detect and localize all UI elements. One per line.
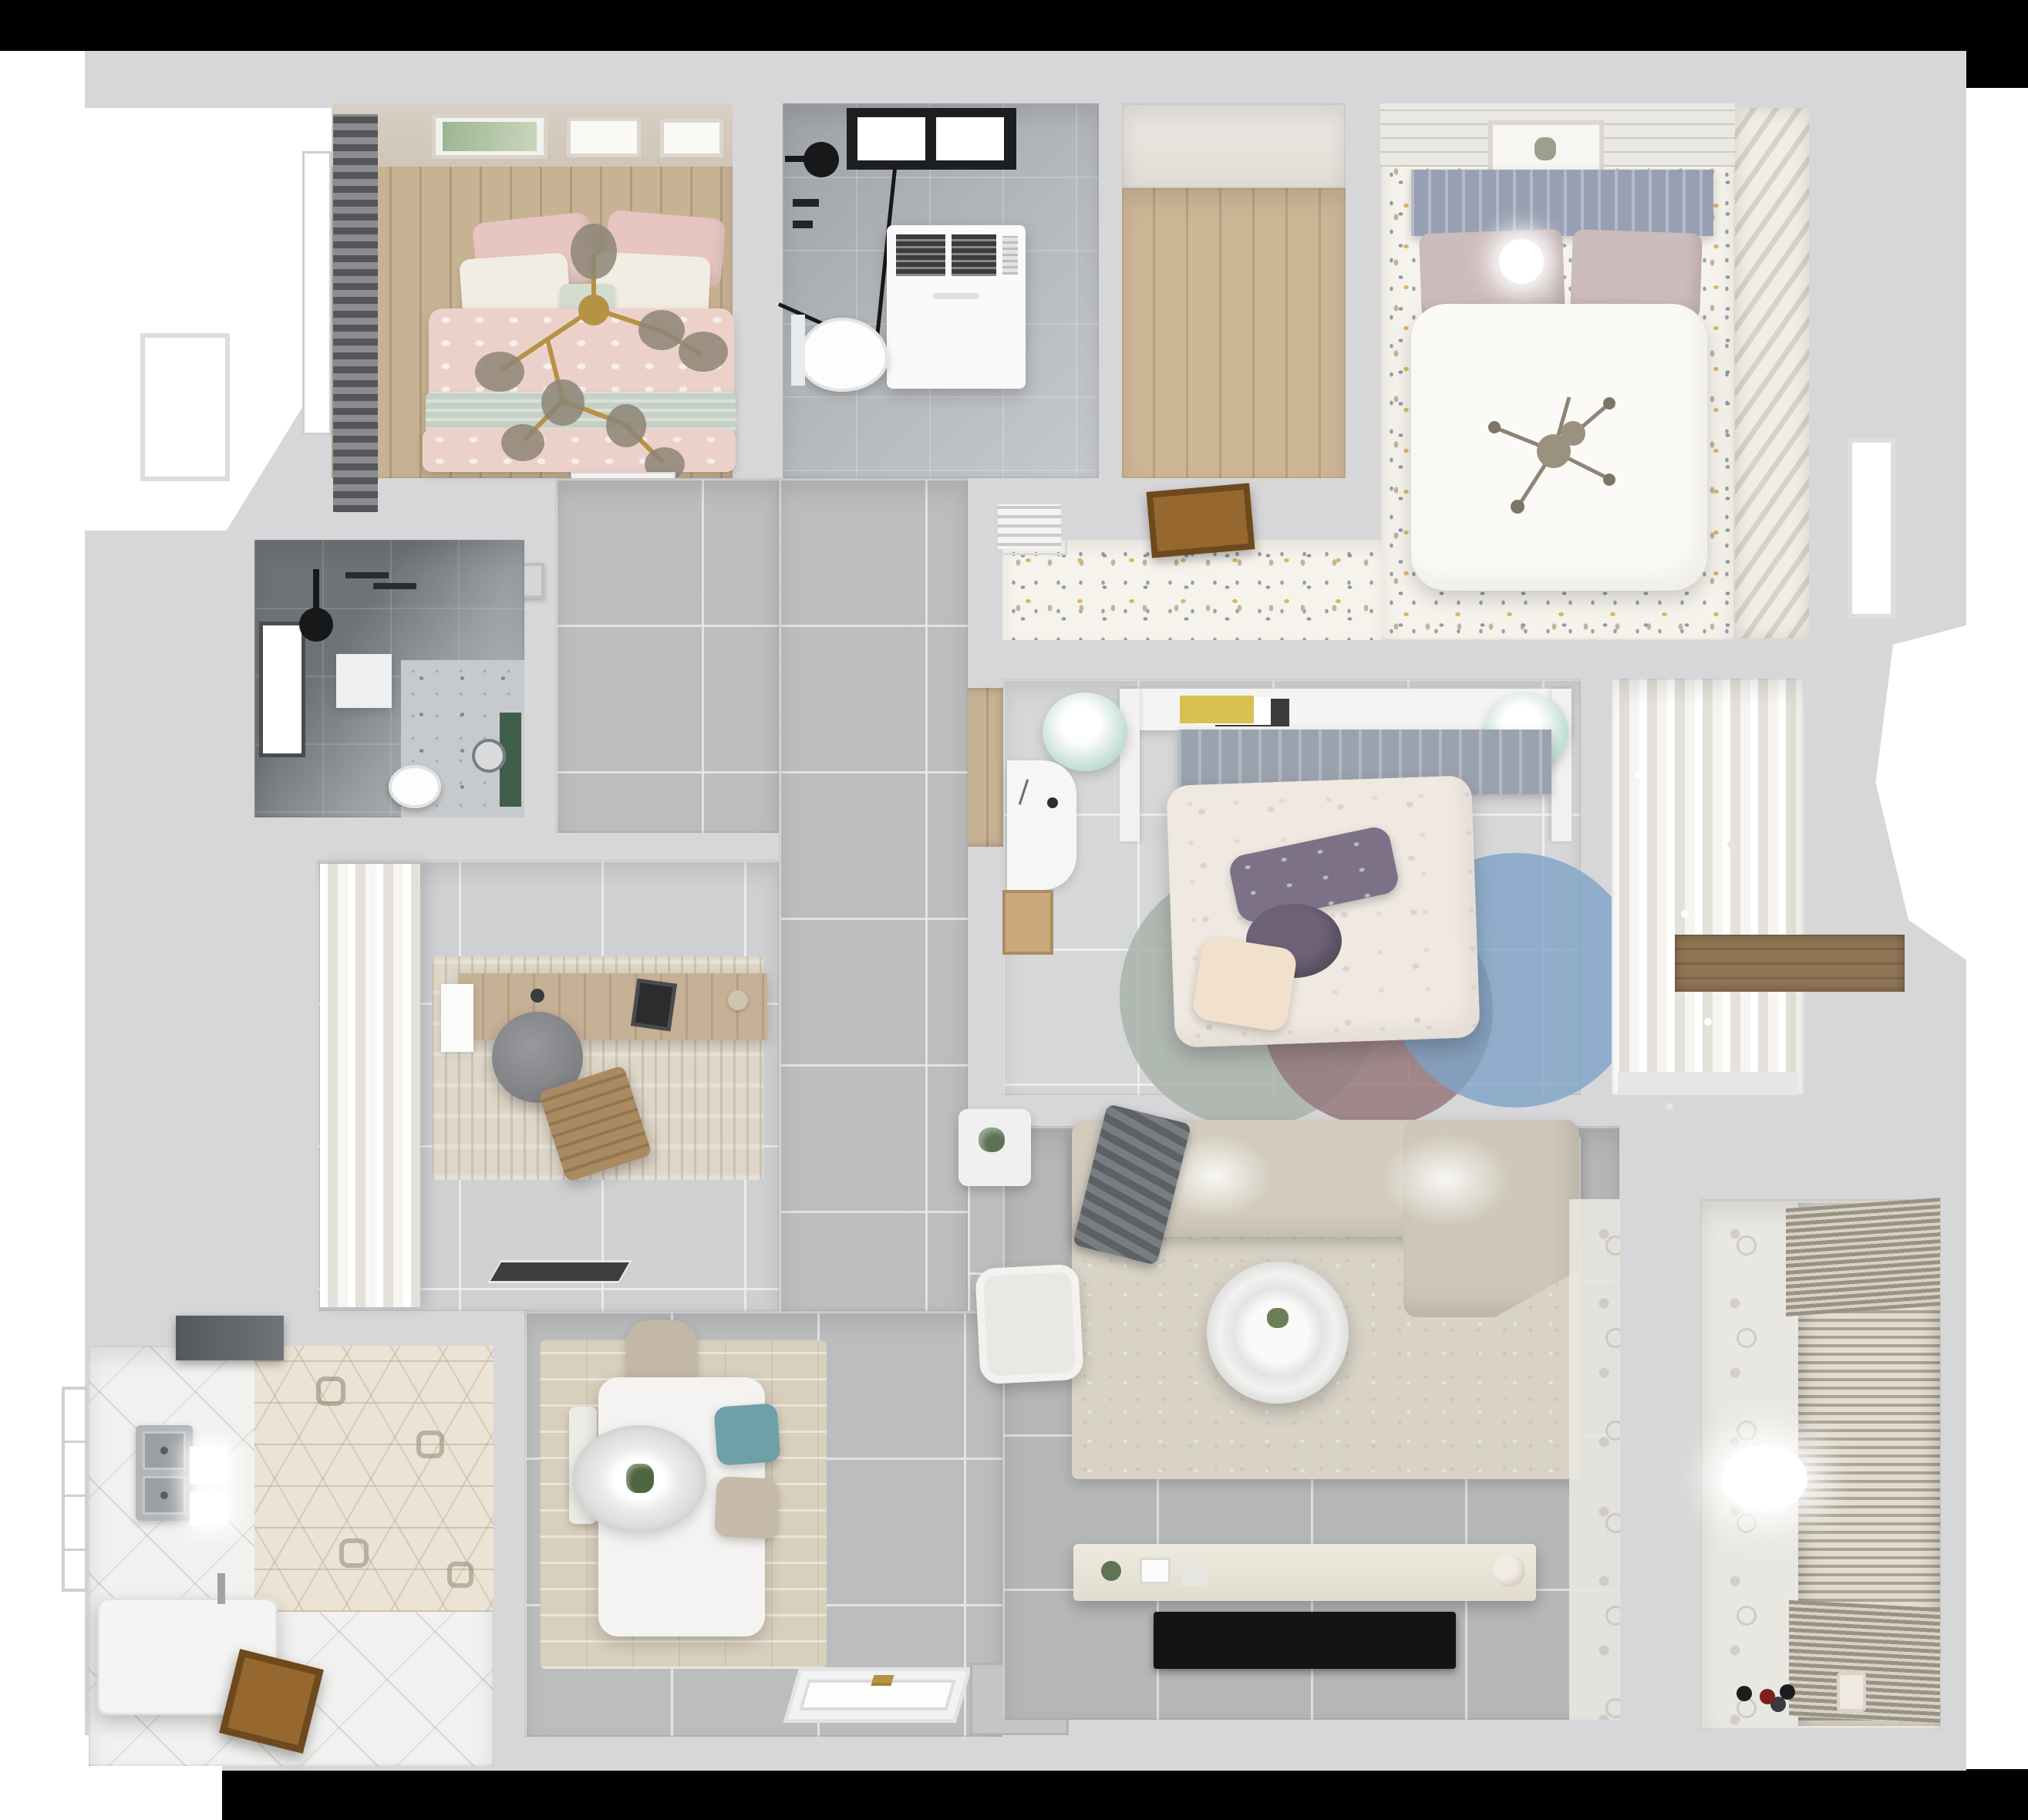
vertical-blinds-strip xyxy=(1735,108,1809,639)
wall-tv xyxy=(1154,1612,1456,1669)
decor-lamp xyxy=(1493,1555,1525,1587)
sputnik-chandelier-icon xyxy=(1465,362,1642,540)
dining-chair-beige xyxy=(714,1476,779,1539)
top-black-bar xyxy=(0,0,2028,51)
dining-chair-beige xyxy=(626,1320,697,1379)
side-table-plant xyxy=(979,1127,1005,1152)
window-pane xyxy=(936,117,1004,160)
bottom-black-bar xyxy=(222,1769,2028,1820)
hex-motif xyxy=(339,1539,369,1568)
picture-frame xyxy=(1488,120,1604,177)
range-hood xyxy=(176,1316,284,1360)
side-table xyxy=(958,1109,1031,1186)
white-desk xyxy=(1007,760,1076,890)
hallway-floor: Hallway xyxy=(779,478,968,1311)
shelf-upright xyxy=(1120,689,1140,841)
white-shelf-unit xyxy=(336,654,392,708)
island-faucet xyxy=(217,1573,225,1604)
shower-valve xyxy=(793,221,813,228)
dark-doormat xyxy=(487,1260,632,1283)
shower-ceiling-arm xyxy=(313,569,319,614)
ball-lamp xyxy=(1499,239,1544,284)
master-side-door-leaf xyxy=(1848,438,1895,618)
walkin-room-wall-top: Empty walk-in room xyxy=(1122,103,1346,188)
toilet xyxy=(389,765,441,808)
background-right-lower xyxy=(1968,995,2028,1769)
desk-plant xyxy=(728,990,748,1010)
sofa-seat-glow xyxy=(1380,1134,1511,1226)
tv-sideboard xyxy=(1073,1544,1536,1601)
hex-motif xyxy=(447,1562,473,1588)
teal-stool xyxy=(1043,693,1127,771)
table-plant xyxy=(1267,1308,1289,1328)
desk-wood-unit xyxy=(1002,890,1053,955)
shower-arm xyxy=(785,156,831,162)
double-stainless-sink xyxy=(136,1425,193,1521)
picture-frame xyxy=(660,119,723,157)
shower-room-window xyxy=(259,622,305,757)
walkin-room-wood-floor xyxy=(1122,188,1346,478)
wood-niche-right xyxy=(1675,935,1905,992)
bright-counter-pad xyxy=(190,1447,228,1484)
hex-motif xyxy=(416,1431,444,1458)
cream-pillow xyxy=(1191,935,1298,1033)
open-wood-door xyxy=(1147,483,1255,558)
study-sheer-curtains xyxy=(320,864,420,1307)
hex-motif xyxy=(316,1377,345,1406)
balcony-toys xyxy=(1737,1686,1752,1701)
desk-papers xyxy=(441,984,473,1052)
bright-counter-pad xyxy=(190,1491,228,1525)
picture-frame xyxy=(567,117,641,157)
washing-machine xyxy=(887,225,1026,389)
balcony-mini-chair xyxy=(1837,1672,1866,1712)
wardrobe-threshold xyxy=(1618,1072,1798,1095)
window-pane xyxy=(857,117,925,160)
balcony-blinds-dense-top xyxy=(1786,1198,1940,1316)
floorplan-render: Top-down 3D render of an apartment floor… xyxy=(0,0,2028,1820)
bedroom-pink-window xyxy=(302,151,332,435)
background-blob-right xyxy=(1979,193,2028,339)
white-armchair xyxy=(975,1264,1084,1385)
gold-branch-chandelier-icon xyxy=(432,224,756,478)
dark-roller-blind xyxy=(333,114,378,512)
dining-chair-teal xyxy=(713,1403,780,1466)
round-mirror xyxy=(472,739,506,773)
headboard-blue-gray xyxy=(1411,170,1713,236)
door-gold-handle xyxy=(872,1675,894,1683)
bedroom-pink-door-leaf xyxy=(140,333,230,481)
shower-fittings xyxy=(345,572,389,578)
decor-plant xyxy=(1101,1561,1121,1581)
air-vent xyxy=(992,498,1067,555)
living-accent-tile-strip xyxy=(1569,1199,1620,1720)
hallway-landing-floor xyxy=(555,478,779,833)
decor-boxes xyxy=(1140,1558,1171,1584)
coffee-table xyxy=(1207,1262,1349,1404)
shelf-books xyxy=(1180,696,1254,723)
front-door-leaf xyxy=(783,1667,972,1723)
balcony-ceiling-light xyxy=(1721,1445,1807,1512)
sheer-wardrobe xyxy=(1612,679,1804,1095)
desk-mug xyxy=(531,989,544,1003)
laptop xyxy=(631,979,677,1032)
botanical-frame xyxy=(432,114,547,159)
kitchen-hex-tiles xyxy=(254,1346,494,1612)
pendant-plant xyxy=(626,1464,654,1493)
toilet-tank xyxy=(791,315,805,386)
kitchen-window xyxy=(62,1387,88,1592)
shower-valve xyxy=(793,199,819,207)
